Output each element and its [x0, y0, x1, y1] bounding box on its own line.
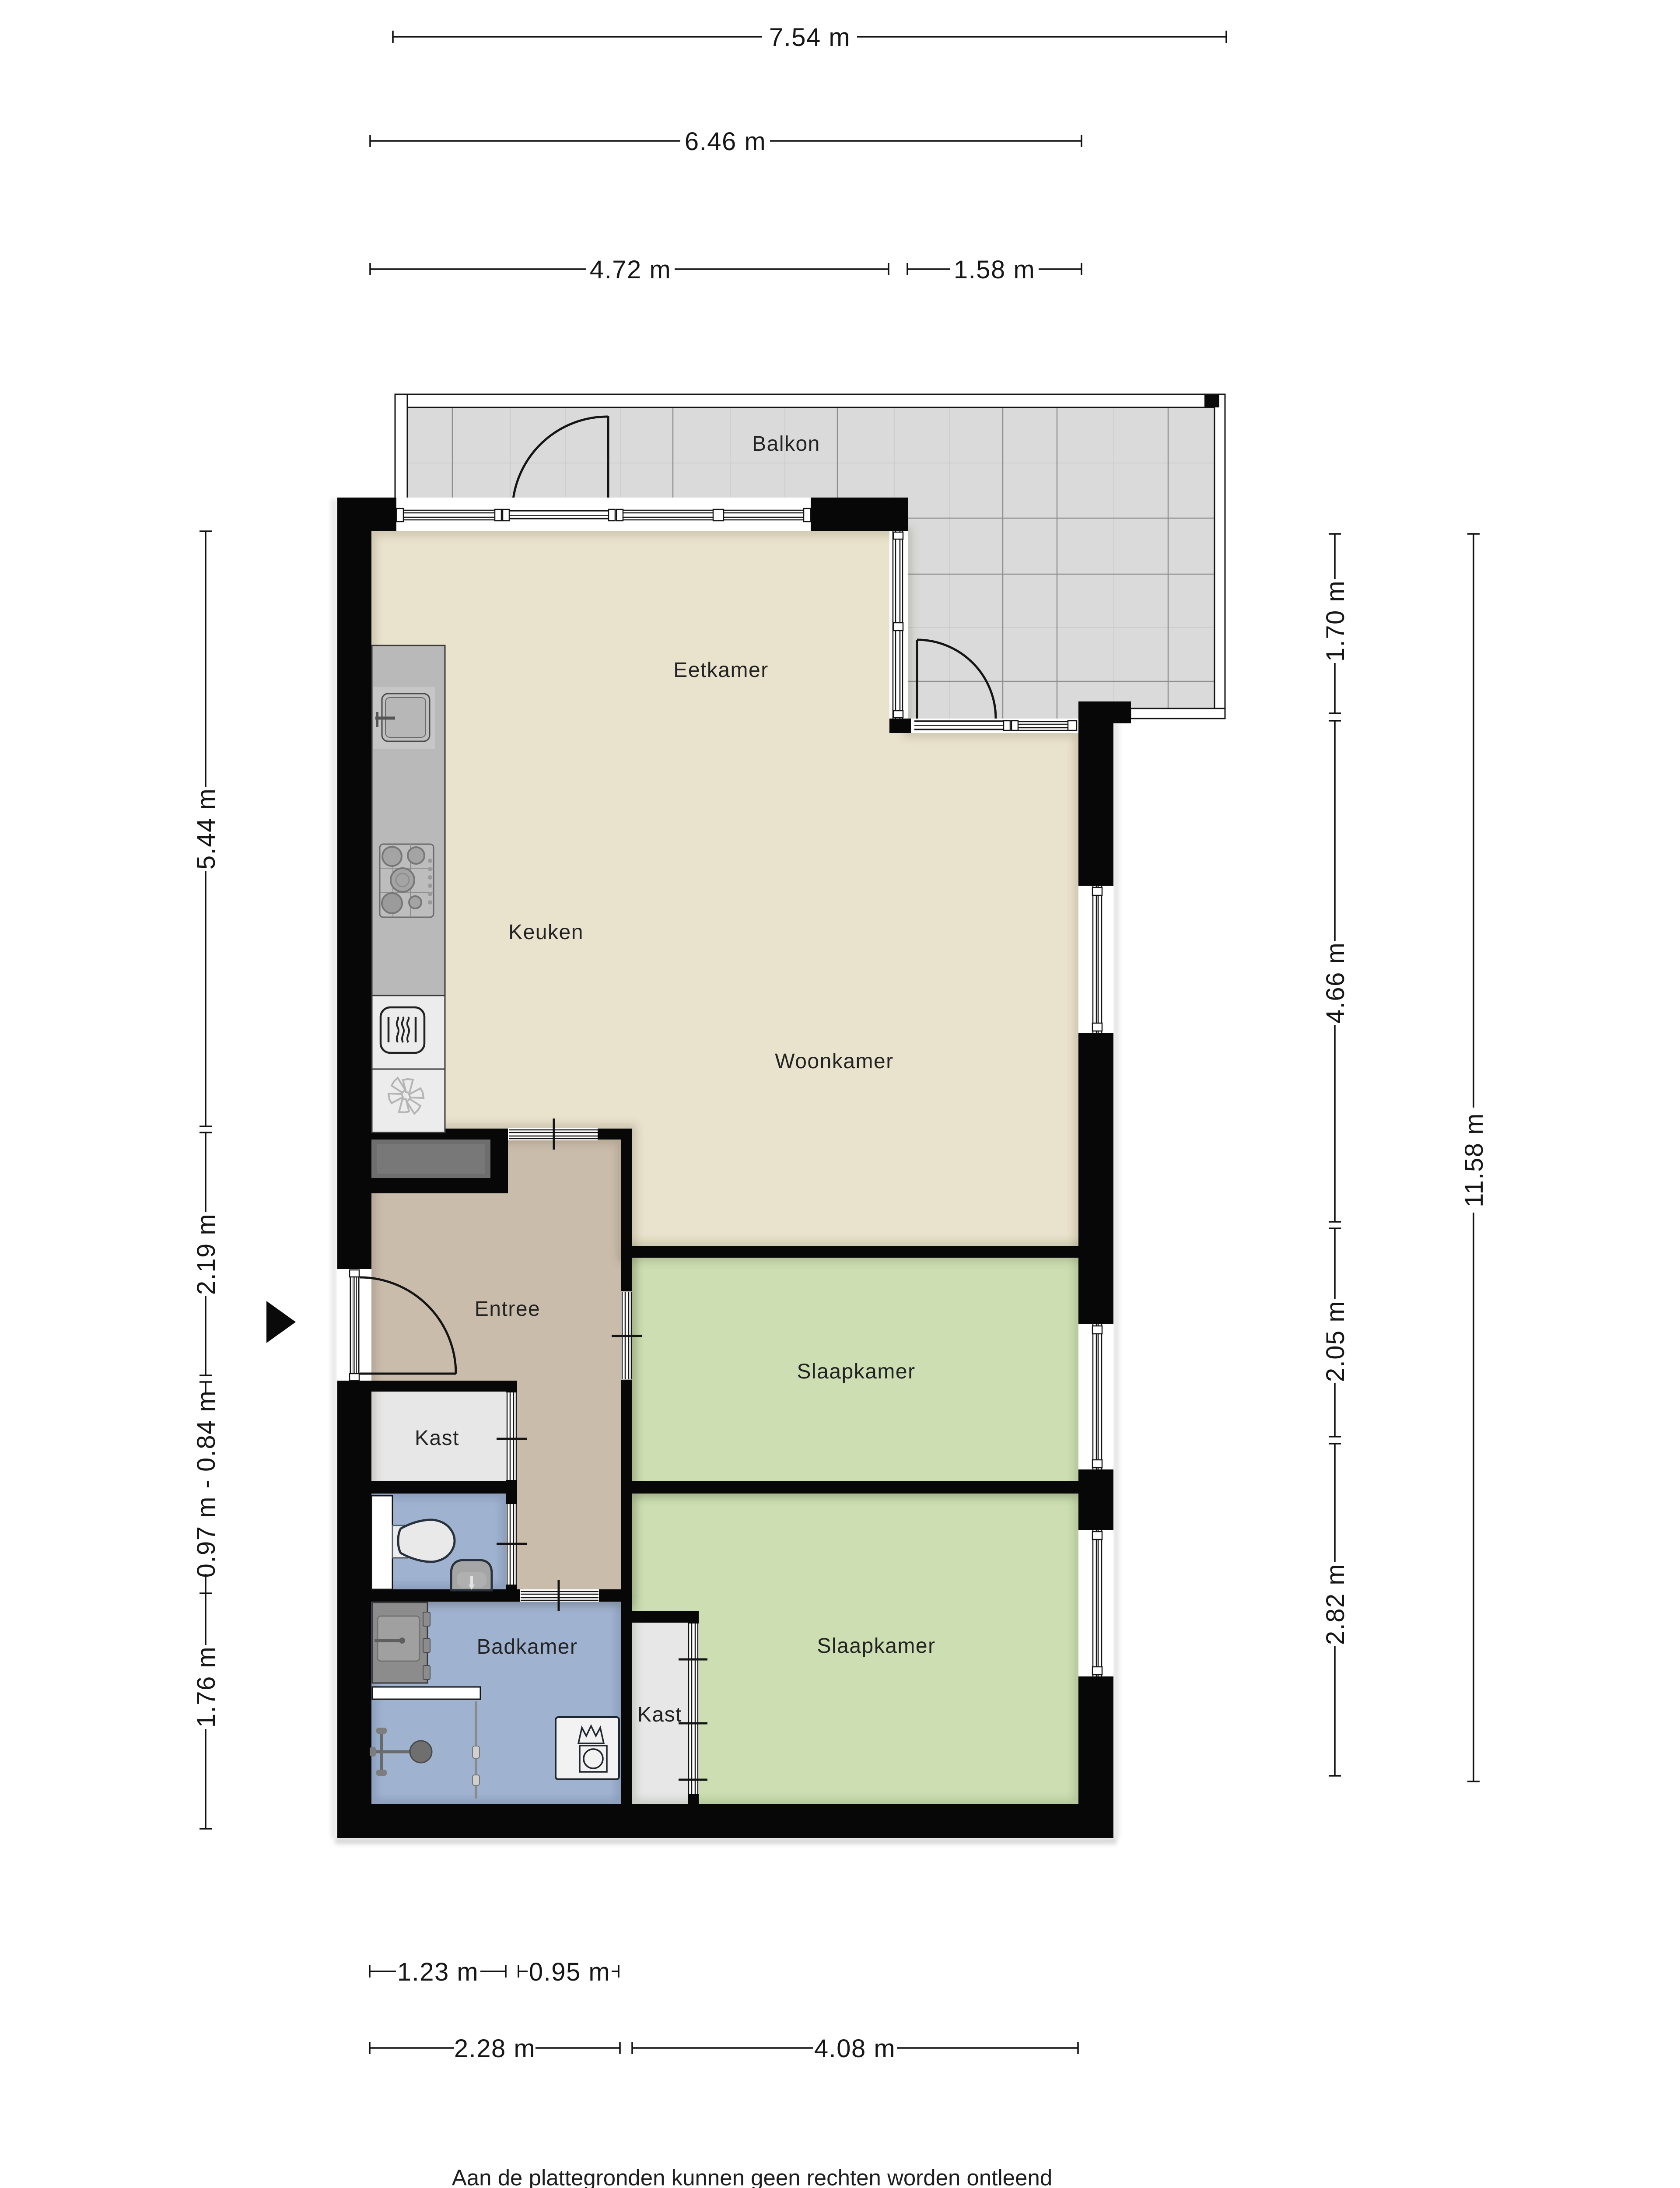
svg-text:7.54 m: 7.54 m	[769, 23, 850, 52]
svg-text:0.95 m: 0.95 m	[529, 1958, 610, 1986]
svg-text:2.82 m: 2.82 m	[1321, 1564, 1350, 1645]
svg-text:Slaapkamer: Slaapkamer	[817, 1634, 935, 1658]
svg-text:Kast: Kast	[637, 1703, 682, 1726]
svg-text:Woonkamer: Woonkamer	[775, 1050, 893, 1073]
svg-text:Eetkamer: Eetkamer	[673, 659, 768, 682]
svg-text:4.08 m: 4.08 m	[814, 2034, 896, 2063]
svg-text:Aan de plattegronden kunnen ge: Aan de plattegronden kunnen geen rechten…	[452, 2165, 1052, 2188]
svg-text:0.97 m - 0.84 m: 0.97 m - 0.84 m	[192, 1390, 220, 1578]
svg-text:Keuken: Keuken	[508, 921, 584, 944]
svg-text:2.19 m: 2.19 m	[192, 1213, 220, 1295]
svg-text:11.58 m: 11.58 m	[1460, 1113, 1488, 1207]
svg-text:2.05 m: 2.05 m	[1321, 1301, 1350, 1382]
svg-text:4.66 m: 4.66 m	[1321, 942, 1350, 1024]
svg-text:Entree: Entree	[475, 1297, 540, 1321]
svg-text:Slaapkamer: Slaapkamer	[797, 1360, 915, 1383]
svg-text:2.28 m: 2.28 m	[454, 2034, 535, 2063]
svg-text:4.72 m: 4.72 m	[590, 256, 671, 284]
svg-text:Badkamer: Badkamer	[477, 1635, 578, 1659]
svg-text:1.70 m: 1.70 m	[1321, 580, 1350, 662]
svg-text:6.46 m: 6.46 m	[685, 127, 766, 156]
svg-text:5.44 m: 5.44 m	[192, 788, 220, 870]
svg-text:1.23 m: 1.23 m	[397, 1958, 479, 1986]
svg-text:Kast: Kast	[415, 1427, 459, 1450]
svg-text:Balkon: Balkon	[752, 432, 820, 456]
svg-text:1.76 m: 1.76 m	[192, 1646, 220, 1728]
svg-text:1.58 m: 1.58 m	[954, 256, 1035, 284]
